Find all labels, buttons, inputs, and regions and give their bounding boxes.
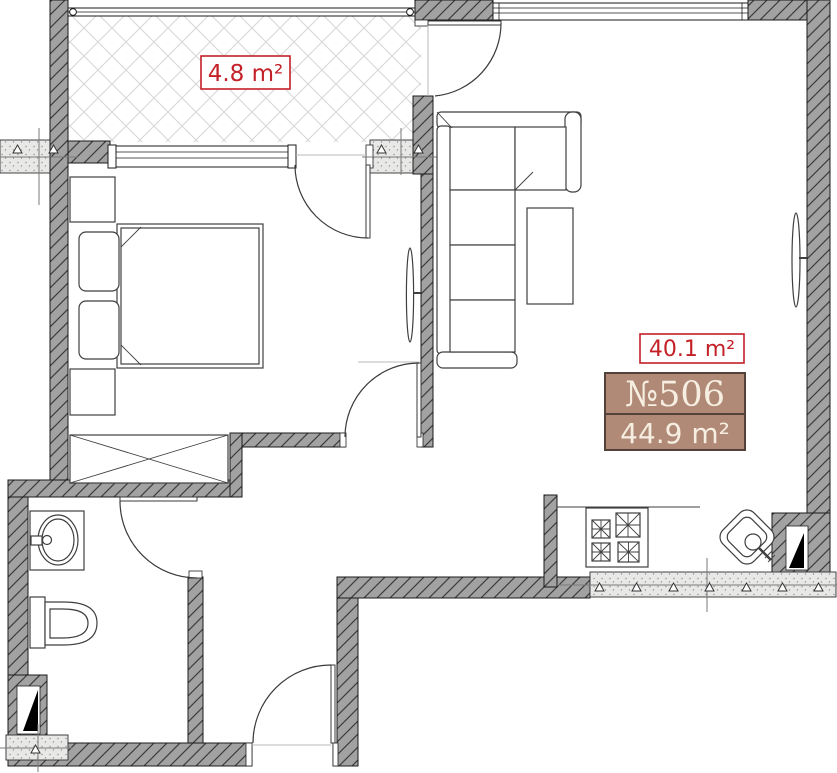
window-bedroom-balcony — [108, 145, 296, 168]
nightstand-bottom — [70, 369, 115, 415]
door-leaf — [331, 665, 335, 743]
coffee-table — [527, 208, 573, 304]
vent-shaft-bottom-right — [786, 526, 808, 570]
door-swing-arc — [435, 23, 501, 96]
toilet-tank — [30, 597, 45, 648]
apartment-badge: №506 44.9 m² — [605, 373, 745, 450]
door-leaf — [417, 363, 421, 437]
window-living-top — [493, 3, 748, 20]
sofa-cushion — [450, 190, 515, 245]
vent-shaft-bottom-left — [17, 686, 40, 734]
sofa-cushion — [450, 127, 515, 190]
floor-plan: 4.8 m² 40.1 m² №506 44.9 m² — [0, 0, 837, 773]
kitchen-sink — [716, 506, 778, 568]
radiator-icon — [792, 213, 800, 307]
living-area-label: 40.1 m² — [640, 334, 744, 363]
balcony-living-door — [428, 21, 501, 96]
sofa-cushion — [515, 127, 566, 190]
balcony-area-label: 4.8 m² — [201, 56, 290, 89]
door-leaf — [428, 21, 501, 25]
cooktop — [586, 508, 648, 567]
burner-icon — [616, 513, 640, 537]
door-swing-arc — [120, 501, 197, 578]
burner-icon — [592, 520, 610, 538]
pillow-icon — [79, 301, 119, 359]
svg-text:40.1 m²: 40.1 m² — [649, 337, 735, 362]
sofa-armrest — [437, 352, 517, 368]
faucet-icon — [31, 536, 42, 545]
balcony-glazing — [68, 8, 421, 16]
apartment-number: №506 — [625, 375, 725, 415]
radiator-icon — [406, 248, 413, 342]
double-bed — [79, 224, 263, 368]
total-area: 44.9 m² — [620, 417, 730, 450]
door-swing-arc — [295, 165, 368, 238]
balcony-bedroom-door — [295, 155, 370, 238]
radiator-bedroom — [406, 248, 421, 342]
radiator-living — [792, 213, 807, 307]
door-leaf — [120, 497, 197, 501]
wardrobe — [70, 435, 228, 483]
sofa-armrest — [565, 112, 581, 192]
nightstand-top — [70, 177, 115, 222]
pillow-icon — [79, 232, 119, 291]
bathroom-door — [120, 497, 197, 578]
door-swing-arc — [345, 363, 419, 437]
door-leaf — [366, 165, 370, 238]
toilet — [30, 597, 97, 648]
bedroom-door — [345, 362, 421, 437]
sofa-cushion — [450, 245, 515, 300]
entrance-door — [252, 665, 335, 745]
burner-icon — [618, 542, 639, 562]
svg-text:4.8 m²: 4.8 m² — [208, 61, 284, 87]
sofa-cushion — [450, 300, 515, 352]
door-swing-arc — [253, 665, 331, 743]
washbasin — [30, 511, 84, 570]
burner-icon — [592, 543, 610, 561]
